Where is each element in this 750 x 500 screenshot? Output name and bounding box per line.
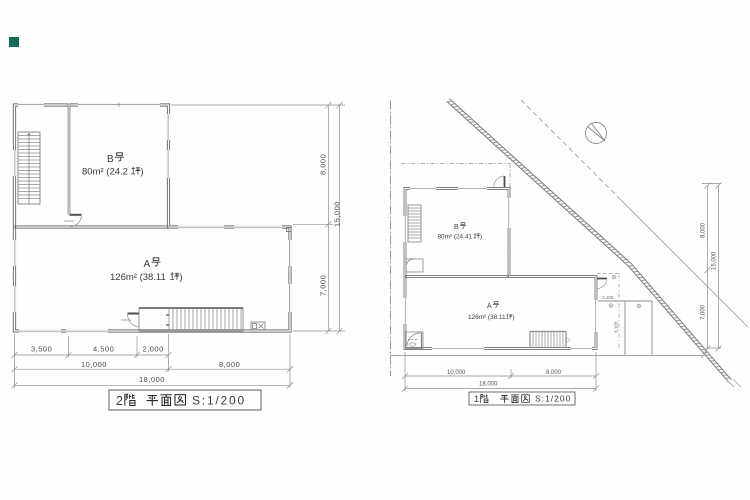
svg-text:8,000: 8,000	[219, 360, 240, 369]
svg-text:): )	[180, 272, 183, 283]
svg-text:15,000: 15,000	[712, 251, 718, 270]
svg-text:18,000: 18,000	[139, 375, 165, 384]
svg-text:10,000: 10,000	[81, 360, 107, 369]
svg-text:18,000: 18,000	[479, 382, 498, 388]
svg-text:): )	[141, 167, 144, 178]
svg-text:2,000: 2,000	[143, 345, 164, 354]
svg-text:8,000: 8,000	[546, 370, 562, 376]
svg-text:1: 1	[474, 394, 479, 404]
svg-text:7,000: 7,000	[701, 304, 707, 320]
svg-text:8,000: 8,000	[319, 154, 328, 175]
svg-text:B: B	[107, 154, 114, 165]
svg-text:4,500: 4,500	[93, 345, 114, 354]
svg-text:S:1/200: S:1/200	[535, 394, 571, 404]
svg-text:A: A	[487, 303, 492, 310]
svg-text:15,000: 15,000	[333, 201, 342, 227]
svg-text:10,000: 10,000	[447, 370, 466, 376]
svg-text:2,105: 2,105	[602, 295, 614, 300]
svg-text:A: A	[144, 259, 151, 270]
svg-text:B: B	[454, 224, 459, 231]
svg-text:S:1/200: S:1/200	[192, 394, 246, 408]
svg-text:): )	[513, 314, 515, 321]
svg-text:126m² (38.11: 126m² (38.11	[110, 272, 166, 283]
svg-text:80m² (24.2: 80m² (24.2	[82, 167, 128, 178]
svg-text:80m² (24.41: 80m² (24.41	[438, 233, 473, 240]
svg-text:): )	[480, 233, 482, 240]
svg-text:126m² (38.11: 126m² (38.11	[468, 314, 506, 321]
svg-text:7,000: 7,000	[319, 275, 328, 296]
svg-text:8,000: 8,000	[701, 222, 707, 238]
svg-text:2: 2	[116, 394, 124, 408]
svg-text:3,500: 3,500	[31, 345, 52, 354]
svg-text:3,105: 3,105	[614, 321, 619, 333]
